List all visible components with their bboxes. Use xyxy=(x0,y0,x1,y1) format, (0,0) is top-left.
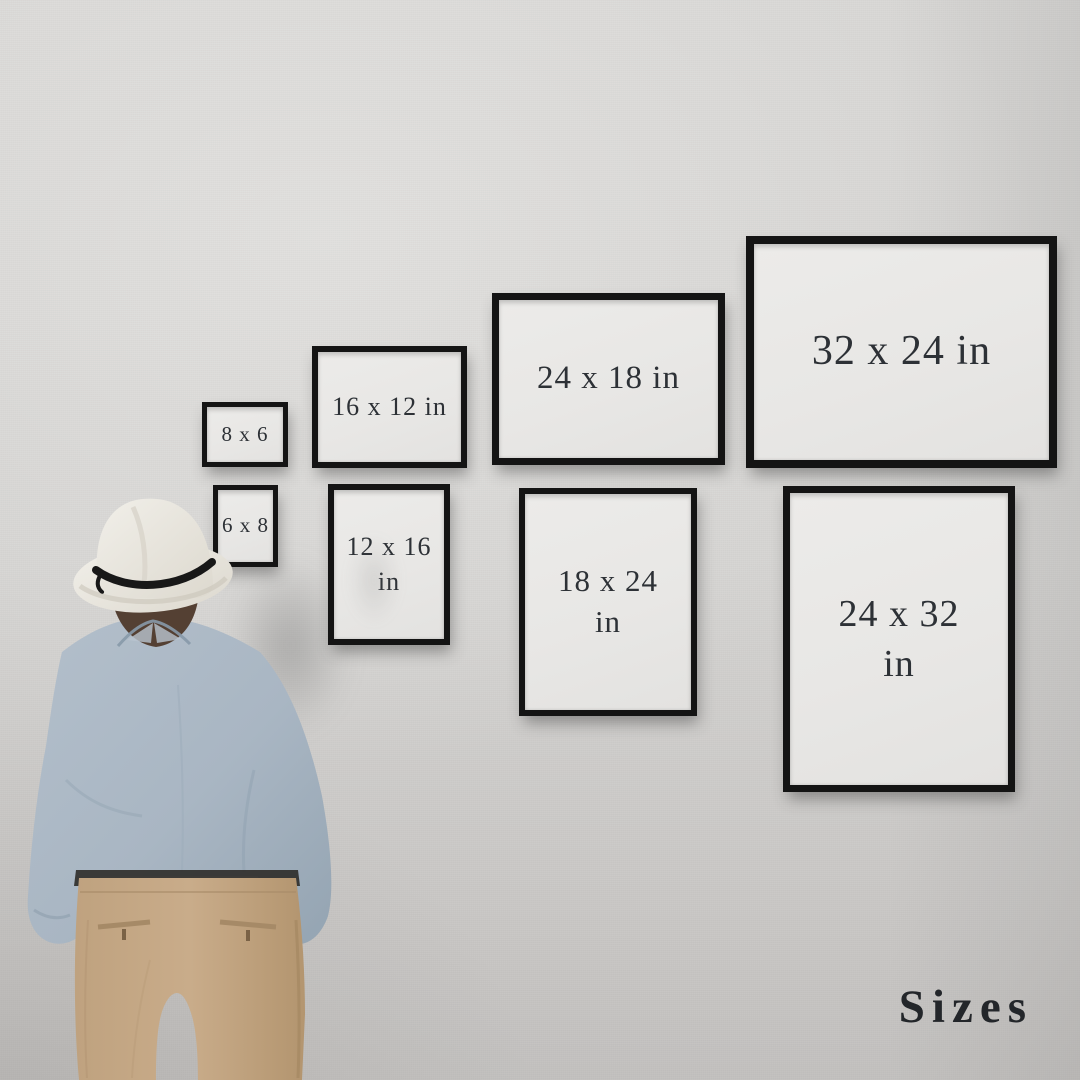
frame-mat: 12 x 16 in xyxy=(334,490,444,639)
frame-size-label: 16 x 12 in xyxy=(332,390,447,424)
frame-12x16: 12 x 16 in xyxy=(328,484,450,645)
frame-size-label: 32 x 24 in xyxy=(812,324,991,379)
frame-24x18: 24 x 18 in xyxy=(492,293,725,465)
frame-size-label: 12 x 16 in xyxy=(347,530,432,599)
frame-mat: 16 x 12 in xyxy=(318,352,461,462)
frame-mat: 24 x 32 in xyxy=(790,493,1008,785)
frame-18x24: 18 x 24 in xyxy=(519,488,697,716)
frame-8x6: 8 x 6 xyxy=(202,402,288,467)
frame-size-label: 24 x 18 in xyxy=(537,357,680,401)
frame-mat: 8 x 6 xyxy=(207,407,283,462)
frame-24x32: 24 x 32 in xyxy=(783,486,1015,792)
man-pants xyxy=(75,878,305,1080)
frame-size-label: 18 x 24 in xyxy=(558,561,658,643)
frame-mat: 18 x 24 in xyxy=(525,494,691,710)
sizes-title: Sizes xyxy=(899,980,1033,1034)
frame-16x12: 16 x 12 in xyxy=(312,346,467,468)
man-figure xyxy=(0,480,340,1080)
frame-mat: 32 x 24 in xyxy=(754,244,1049,460)
frame-mat: 24 x 18 in xyxy=(499,300,718,458)
frame-32x24: 32 x 24 in xyxy=(746,236,1057,468)
scene: 8 x 6 16 x 12 in 24 x 18 in 32 x 24 in 6… xyxy=(0,0,1080,1080)
frame-size-label: 8 x 6 xyxy=(222,421,269,449)
frame-size-label: 24 x 32 in xyxy=(839,589,960,689)
